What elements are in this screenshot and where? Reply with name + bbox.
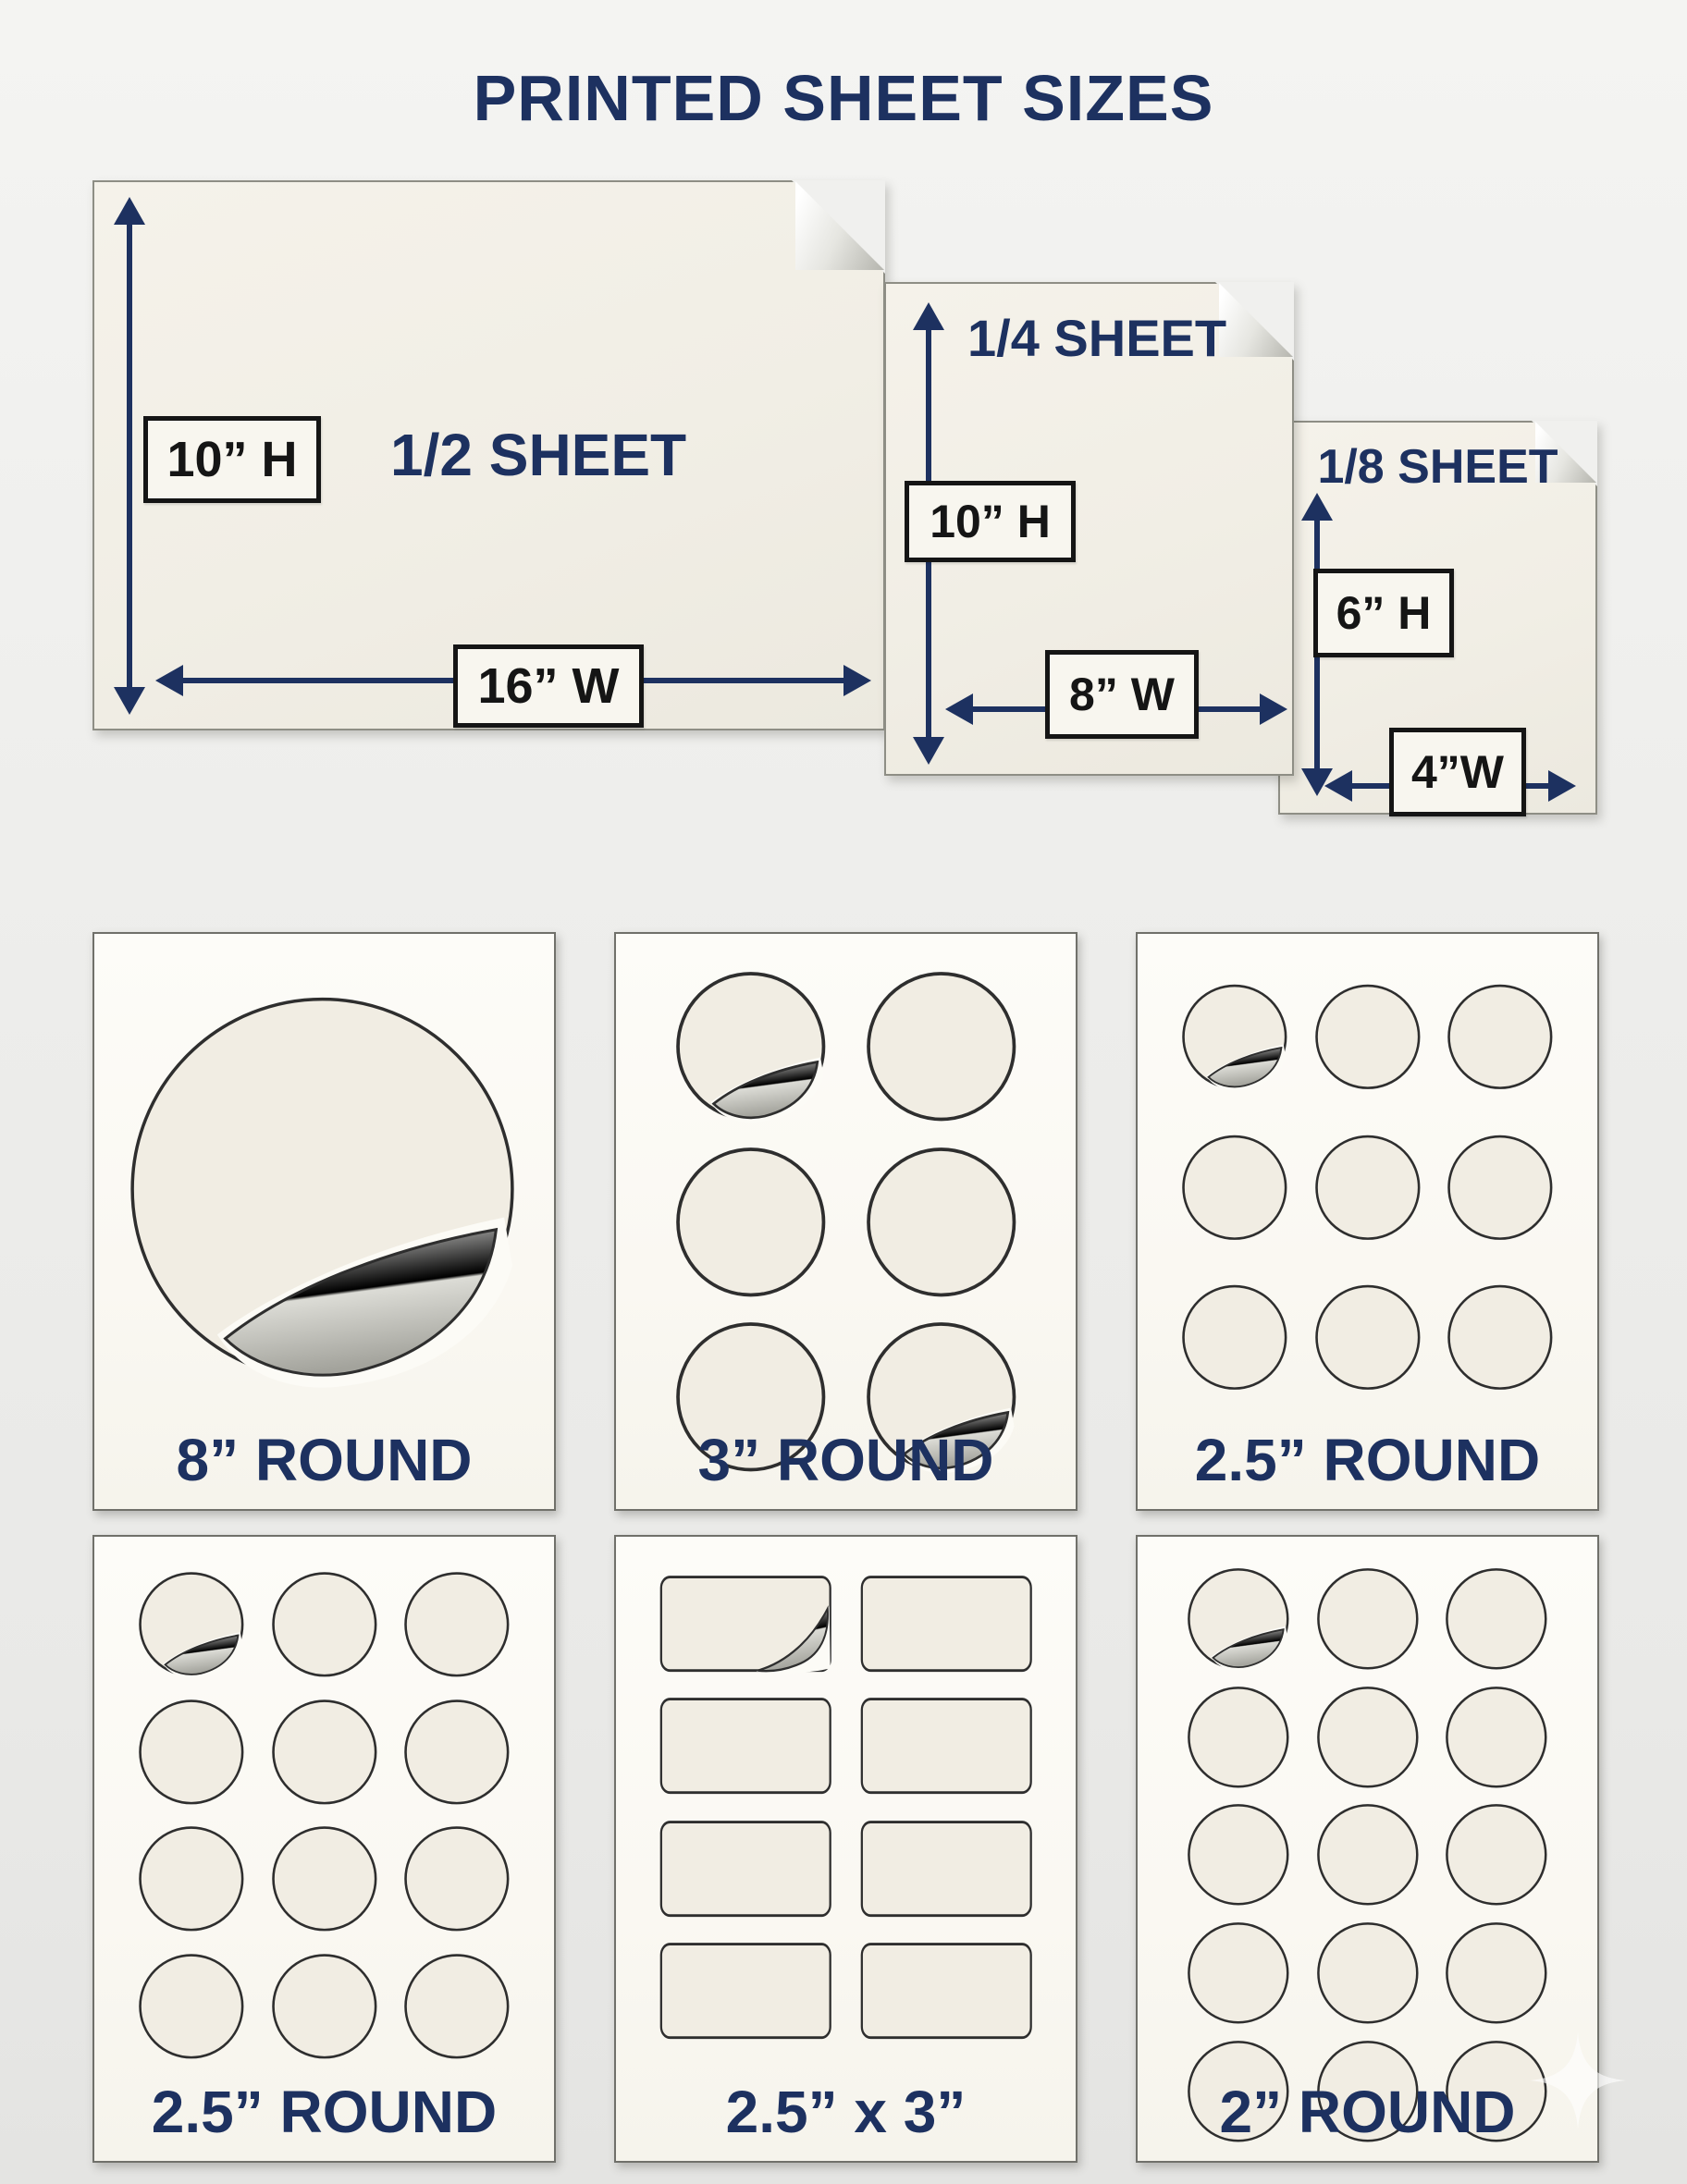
sticker-circle [137, 1824, 246, 1933]
sticker-circle [1444, 1685, 1549, 1790]
sticker-circle [864, 1145, 1019, 1300]
sticker-circle [1444, 1802, 1549, 1908]
sticker-circle [1315, 1920, 1421, 2026]
card-2-5in-round-9up: 2.5” ROUND [1136, 932, 1599, 1511]
width-dimension-label: 16” W [453, 644, 644, 728]
card-label: 8” ROUND [94, 1426, 554, 1494]
sticker-circle [1186, 1802, 1291, 1908]
width-dimension-label: 4”W [1389, 728, 1526, 816]
eighth-sheet-label: 1/8 SHEET [1293, 439, 1582, 495]
sticker-circle [402, 1824, 511, 1933]
sticker-rect [859, 1696, 1034, 1796]
sticker-grid [1186, 1566, 1549, 2048]
sticker-circle [1186, 1566, 1291, 1672]
sticker-circle [1444, 1920, 1549, 2026]
card-label: 3” ROUND [616, 1426, 1076, 1494]
page-title: PRINTED SHEET SIZES [0, 61, 1687, 135]
sticker-circle [1180, 1125, 1289, 1250]
sticker-circle [402, 1952, 511, 2061]
sticker-circle [673, 1145, 829, 1300]
quarter-sheet-label: 1/4 SHEET [967, 308, 1226, 368]
eighth-sheet-diagram: 1/8 SHEET 6” H 4”W [1278, 421, 1597, 815]
sticker-circle [1446, 1125, 1555, 1250]
card-label: 2” ROUND [1138, 2078, 1597, 2146]
sticker-grid [673, 969, 1018, 1400]
quarter-sheet-diagram: 1/4 SHEET 10” H 8” W [884, 282, 1294, 776]
half-sheet-diagram: 1/2 SHEET 10” H 16” W [92, 180, 885, 730]
sticker-circle [270, 1570, 379, 1679]
sticker-grid [120, 982, 524, 1396]
sticker-circle [1180, 1275, 1289, 1400]
sticker-circle [270, 1952, 379, 2061]
sticker-circle [137, 1570, 246, 1679]
height-dimension-label: 10” H [143, 416, 321, 503]
sticker-rect [659, 1574, 833, 1674]
sticker-circle [1313, 975, 1422, 1099]
sticker-grid [659, 1574, 1033, 2041]
height-dimension-label: 10” H [905, 481, 1076, 562]
card-2-5in-round-12up: 2.5” ROUND [92, 1535, 556, 2163]
sticker-rect [659, 1819, 833, 1919]
sticker-circle [1313, 1275, 1422, 1400]
height-dimension-label: 6” H [1313, 569, 1454, 657]
sticker-circle [137, 1698, 246, 1807]
sticker-circle [673, 969, 829, 1124]
sticker-rect [859, 1574, 1034, 1674]
sticker-circle [137, 1952, 246, 2061]
height-arrow [114, 197, 145, 715]
sticker-rect [859, 1819, 1034, 1919]
sticker-circle [1446, 975, 1555, 1099]
sparkle-watermark-icon [1530, 2032, 1626, 2129]
sticker-circle [1313, 1125, 1422, 1250]
half-sheet-label: 1/2 SHEET [390, 421, 686, 489]
sticker-circle [1315, 1566, 1421, 1672]
card-label: 2.5” ROUND [1138, 1426, 1597, 1494]
sticker-circle [120, 982, 524, 1396]
sticker-circle [1446, 1275, 1555, 1400]
sticker-rect [659, 1941, 833, 2041]
sticker-circle [1186, 1920, 1291, 2026]
sticker-circle [402, 1570, 511, 1679]
sticker-grid [137, 1570, 511, 2046]
sticker-rect [659, 1696, 833, 1796]
sticker-circle [270, 1698, 379, 1807]
sticker-circle [1315, 1802, 1421, 1908]
sticker-circle [1315, 1685, 1421, 1790]
sticker-rect [859, 1941, 1034, 2041]
card-label: 2.5” ROUND [94, 2078, 554, 2146]
width-dimension-label: 8” W [1045, 650, 1199, 739]
sticker-circle [270, 1824, 379, 1933]
printed-sheet-sizes-infographic: PRINTED SHEET SIZES 1/2 SHEET 10” H 16” … [0, 0, 1687, 2184]
card-8in-round: 8” ROUND [92, 932, 556, 1511]
sticker-circle [1444, 1566, 1549, 1672]
card-label: 2.5” x 3” [616, 2078, 1076, 2146]
sticker-circle [1186, 1685, 1291, 1790]
sticker-circle [864, 969, 1019, 1124]
card-2-5x3-rect: 2.5” x 3” [614, 1535, 1077, 2163]
sticker-circle [1180, 975, 1289, 1099]
sticker-grid [1180, 975, 1555, 1400]
sticker-circle [402, 1698, 511, 1807]
card-3in-round: 3” ROUND [614, 932, 1077, 1511]
